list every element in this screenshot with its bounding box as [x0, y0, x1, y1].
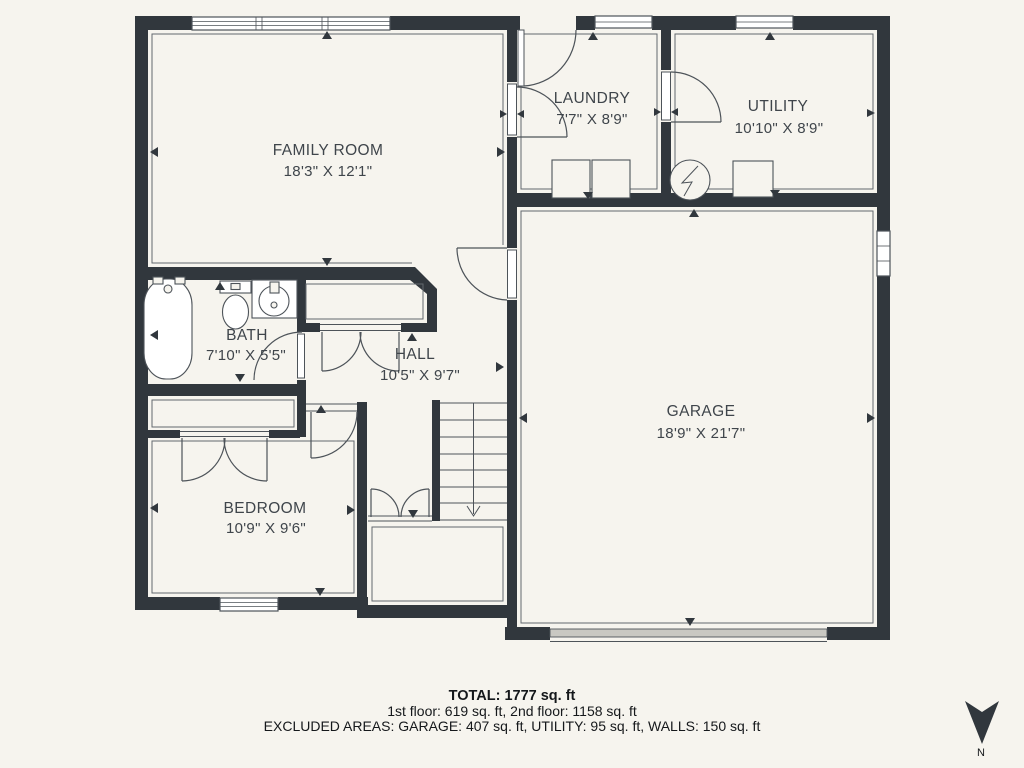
- garage-vehicle-door: [550, 627, 827, 642]
- garage-label: GARAGE: [667, 403, 736, 420]
- total-area-text: TOTAL: 1777 sq. ft: [449, 688, 576, 704]
- staircase: [440, 403, 507, 520]
- utility-window: [736, 16, 793, 28]
- hall-dims: 10'5" X 9'7": [380, 367, 460, 384]
- room-family-room: FAMILY ROOM 18'3" X 12'1": [273, 142, 384, 180]
- utility-label: UTILITY: [748, 98, 809, 115]
- laundry-entry-door: [518, 16, 576, 86]
- north-arrow-icon: [965, 701, 999, 744]
- family-room-window: [192, 17, 390, 30]
- bathroom-sink-icon: [252, 280, 297, 318]
- utility-appliance-icon: [733, 161, 773, 197]
- hall-closet-doors: [320, 325, 401, 372]
- room-garage: GARAGE 18'9" X 21'7": [657, 403, 746, 442]
- family-room-dims: 18'3" X 12'1": [284, 163, 373, 180]
- garage-dims: 18'9" X 21'7": [657, 425, 746, 442]
- area-summary: TOTAL: 1777 sq. ft 1st floor: 619 sq. ft…: [264, 688, 761, 734]
- family-room-label: FAMILY ROOM: [273, 142, 384, 159]
- hall-label: HALL: [395, 346, 435, 363]
- laundry-label: LAUNDRY: [554, 90, 631, 107]
- bedroom-window: [220, 598, 278, 611]
- bath-dims: 7'10" X 5'5": [206, 347, 286, 364]
- garage-window: [877, 231, 890, 276]
- laundry-window: [595, 16, 652, 28]
- room-utility: UTILITY 10'10" X 8'9": [735, 98, 824, 137]
- room-laundry: LAUNDRY 7'7" X 8'9": [554, 90, 631, 128]
- bedroom-dims: 10'9" X 9'6": [226, 520, 306, 537]
- floor-plan: FAMILY ROOM 18'3" X 12'1" LAUNDRY 7'7" X…: [0, 0, 1024, 768]
- dryer-icon: [592, 160, 630, 198]
- toilet-icon: [220, 281, 251, 329]
- floors-area-text: 1st floor: 619 sq. ft, 2nd floor: 1158 s…: [387, 703, 637, 719]
- bedroom-door: [306, 404, 357, 458]
- utility-dims: 10'10" X 8'9": [735, 120, 824, 137]
- excluded-area-text: EXCLUDED AREAS: GARAGE: 407 sq. ft, UTIL…: [264, 718, 761, 734]
- room-bedroom: BEDROOM 10'9" X 9'6": [224, 500, 307, 537]
- bedroom-label: BEDROOM: [224, 500, 307, 517]
- bath-label: BATH: [226, 327, 268, 344]
- water-heater-icon: [670, 160, 710, 200]
- bedroom-closet-doors: [180, 432, 269, 482]
- north-label: N: [977, 747, 985, 759]
- compass: N: [965, 701, 999, 759]
- room-hall: HALL 10'5" X 9'7": [380, 346, 460, 384]
- bathtub-icon: [144, 277, 192, 379]
- utility-door: [662, 72, 722, 122]
- entry-double-doors: [368, 489, 432, 521]
- laundry-dims: 7'7" X 8'9": [556, 111, 627, 128]
- garage-door-interior: [457, 248, 517, 300]
- room-bath: BATH 7'10" X 5'5": [206, 327, 286, 364]
